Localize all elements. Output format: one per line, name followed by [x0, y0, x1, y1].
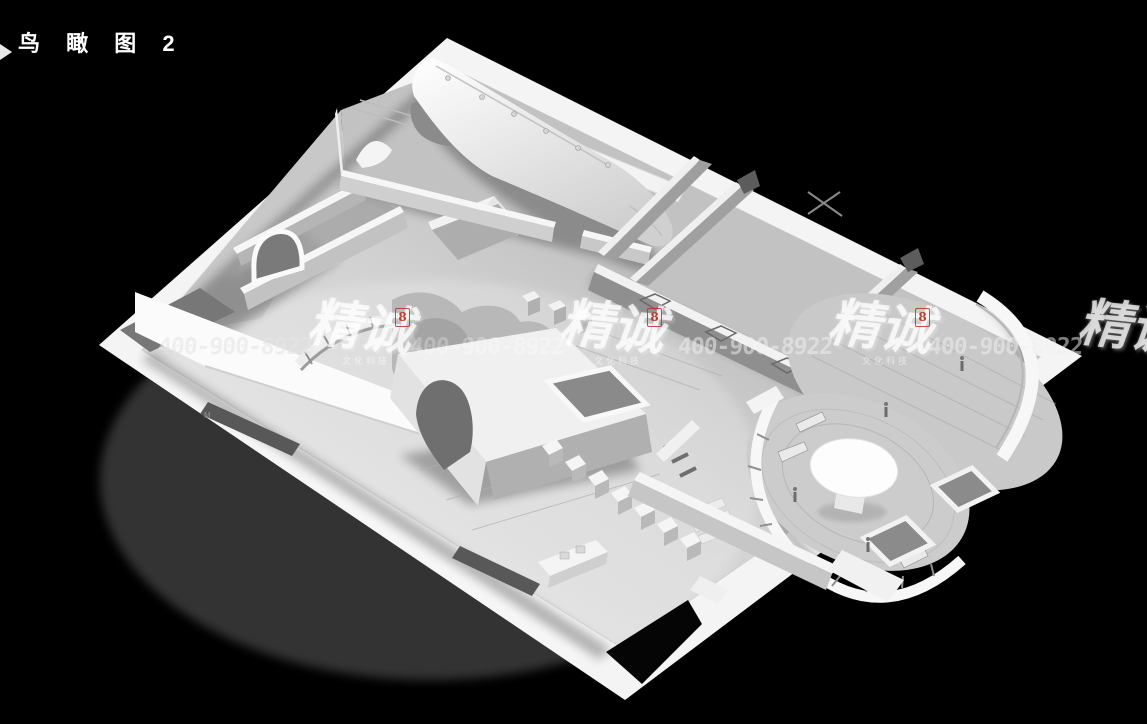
page-title: 鸟 瞰 图 2 [18, 26, 180, 58]
table-object-1 [560, 552, 569, 559]
birdseye-render-page: 鸟 瞰 图 2 [0, 0, 1147, 724]
table-object-2 [576, 546, 585, 553]
floor-mark-label: M [204, 411, 211, 420]
model-3d-render: M [0, 0, 1147, 724]
model-svg: M [0, 0, 1147, 724]
